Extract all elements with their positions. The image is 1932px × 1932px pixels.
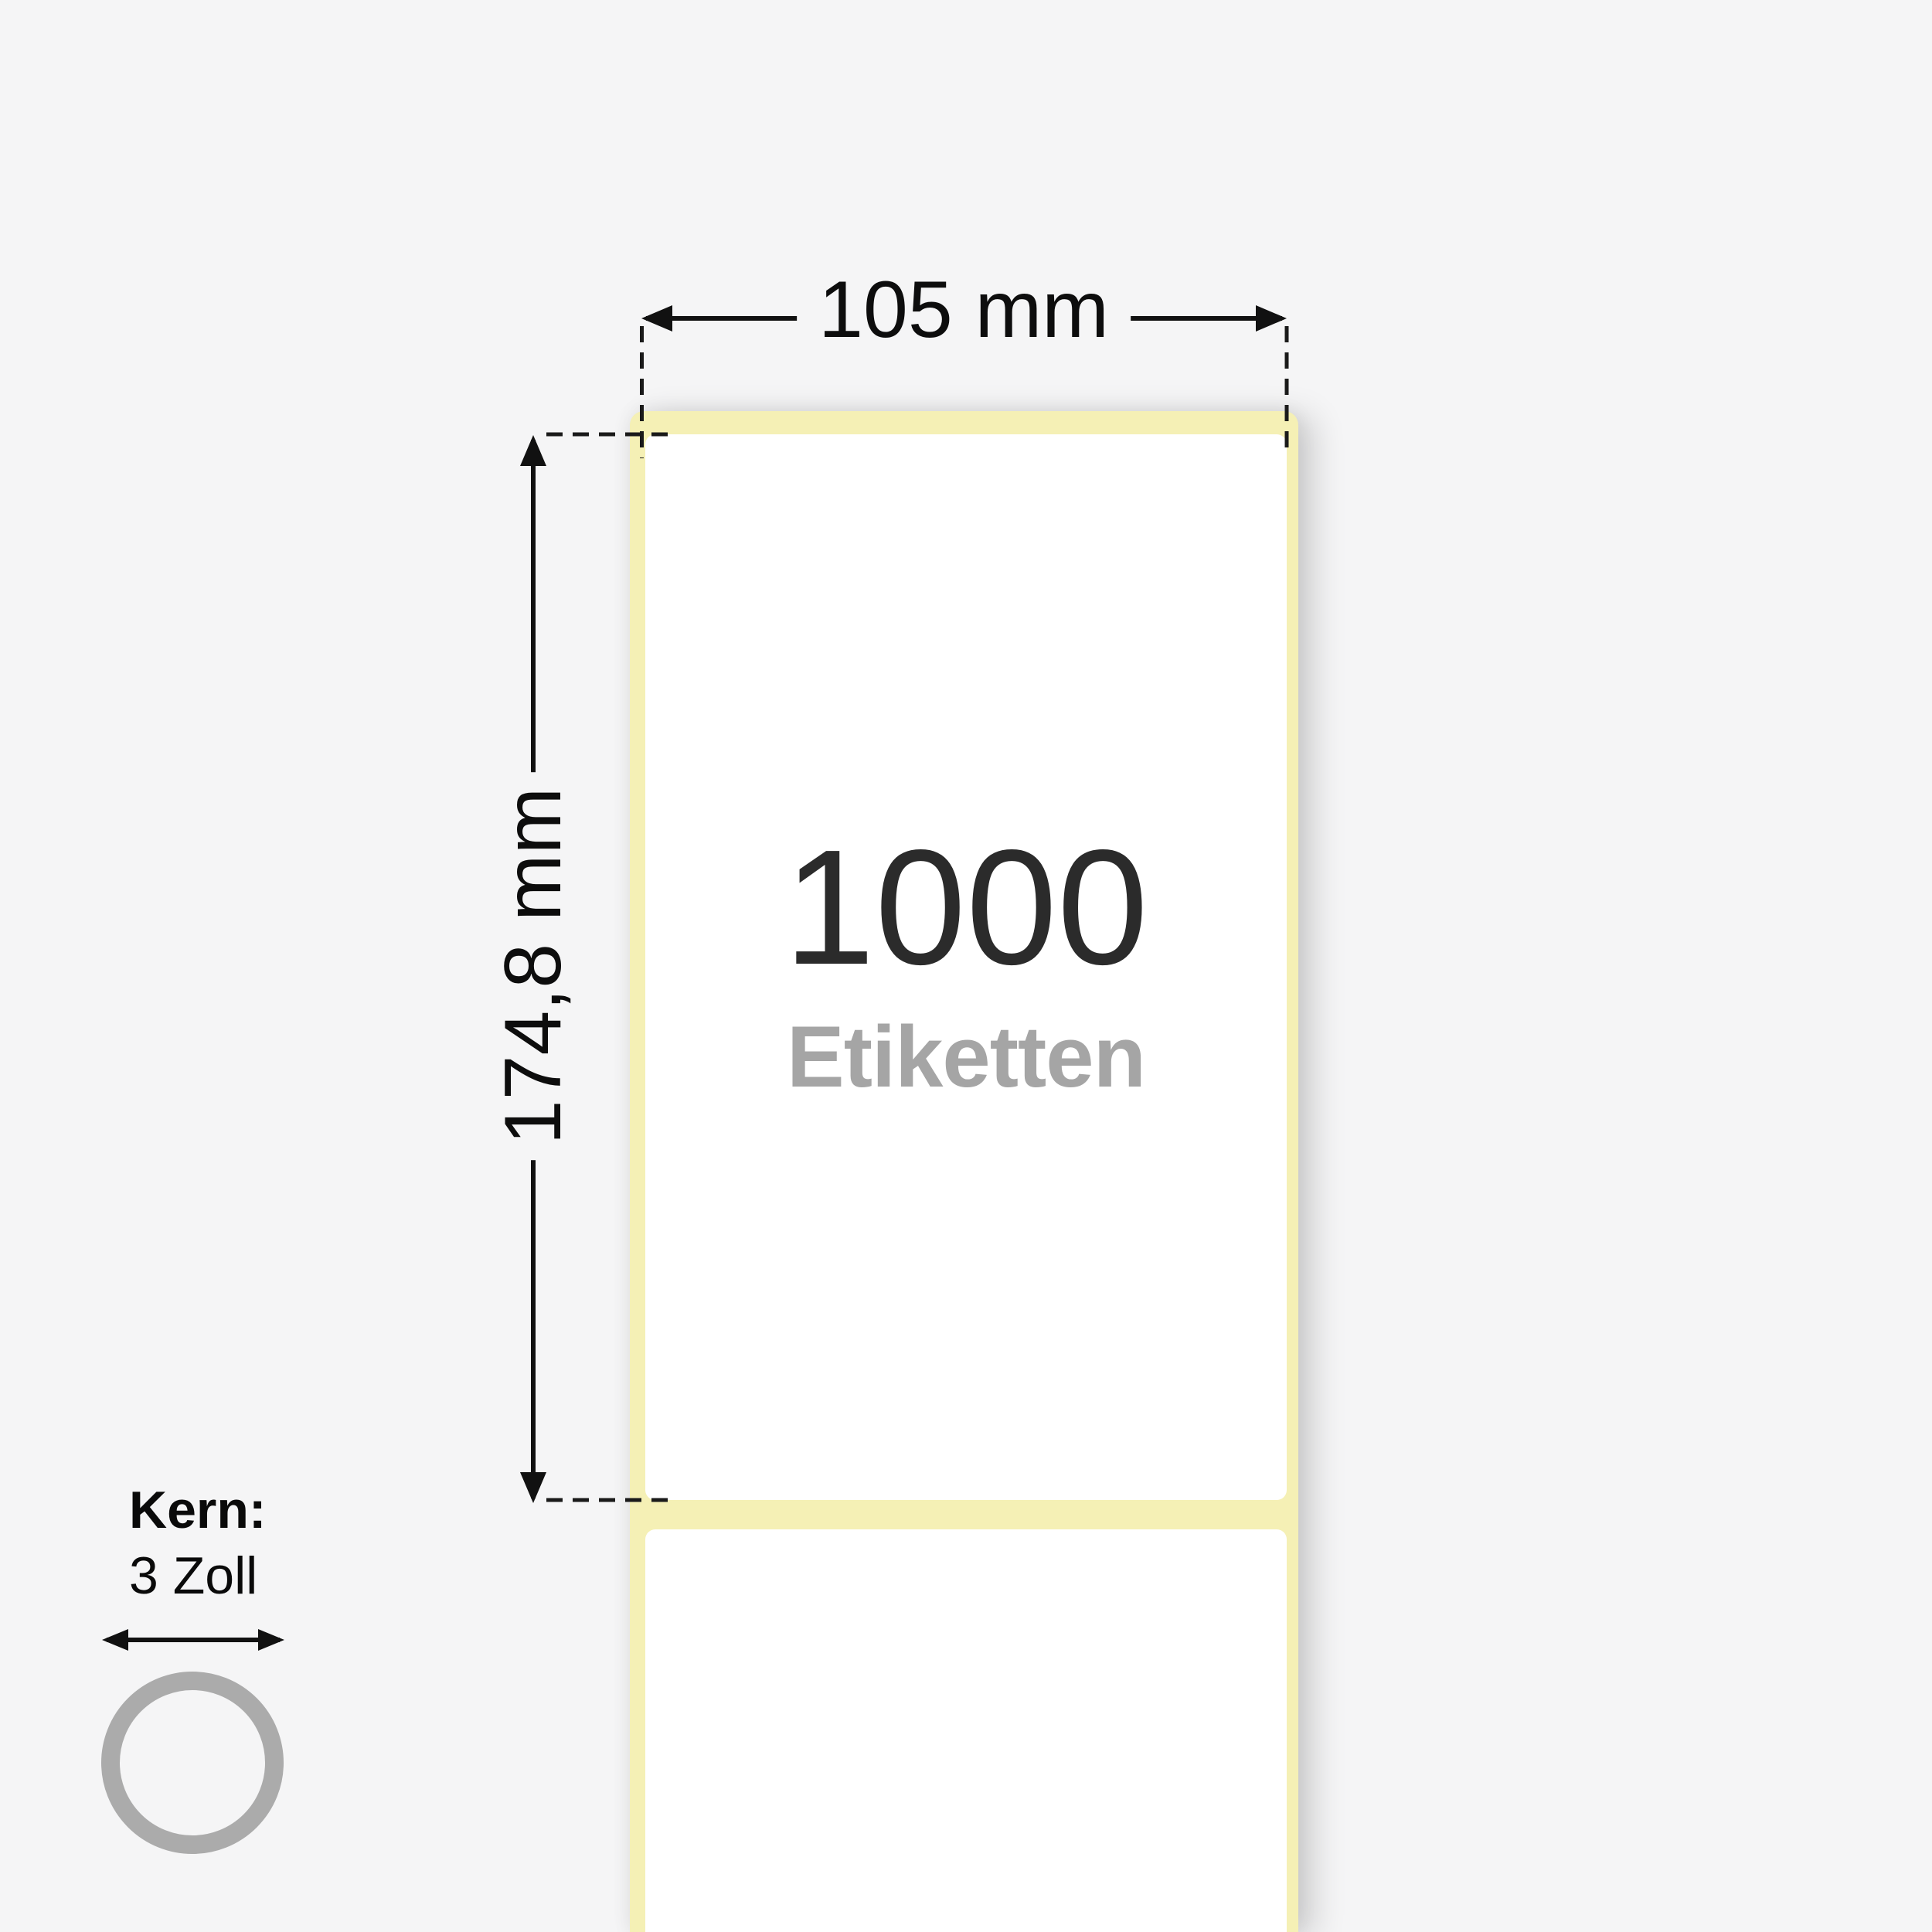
- width-dimension-label: 105 mm: [797, 270, 1131, 350]
- width-arrow-left-icon: [641, 305, 672, 332]
- label-count-unit: Etiketten: [645, 1014, 1287, 1100]
- width-arrow-right-icon: [1256, 305, 1287, 332]
- core-arrow-left-icon: [102, 1629, 128, 1651]
- height-arrow-top-icon: [520, 435, 546, 466]
- label-count: 1000: [645, 825, 1287, 989]
- core-size: 3 Zoll: [129, 1549, 257, 1602]
- height-dimension-label: 174,8 mm: [493, 772, 573, 1160]
- label-roll-diagram: 105 mm 174,8 mm 1000 Etiketten Kern: 3 Z…: [0, 0, 1932, 1932]
- core-title: Kern:: [129, 1484, 267, 1536]
- core-ring-icon: [111, 1681, 274, 1845]
- blank-label-bottom: [645, 1529, 1287, 1932]
- height-arrow-bottom-icon: [520, 1472, 546, 1503]
- core-arrow-right-icon: [258, 1629, 284, 1651]
